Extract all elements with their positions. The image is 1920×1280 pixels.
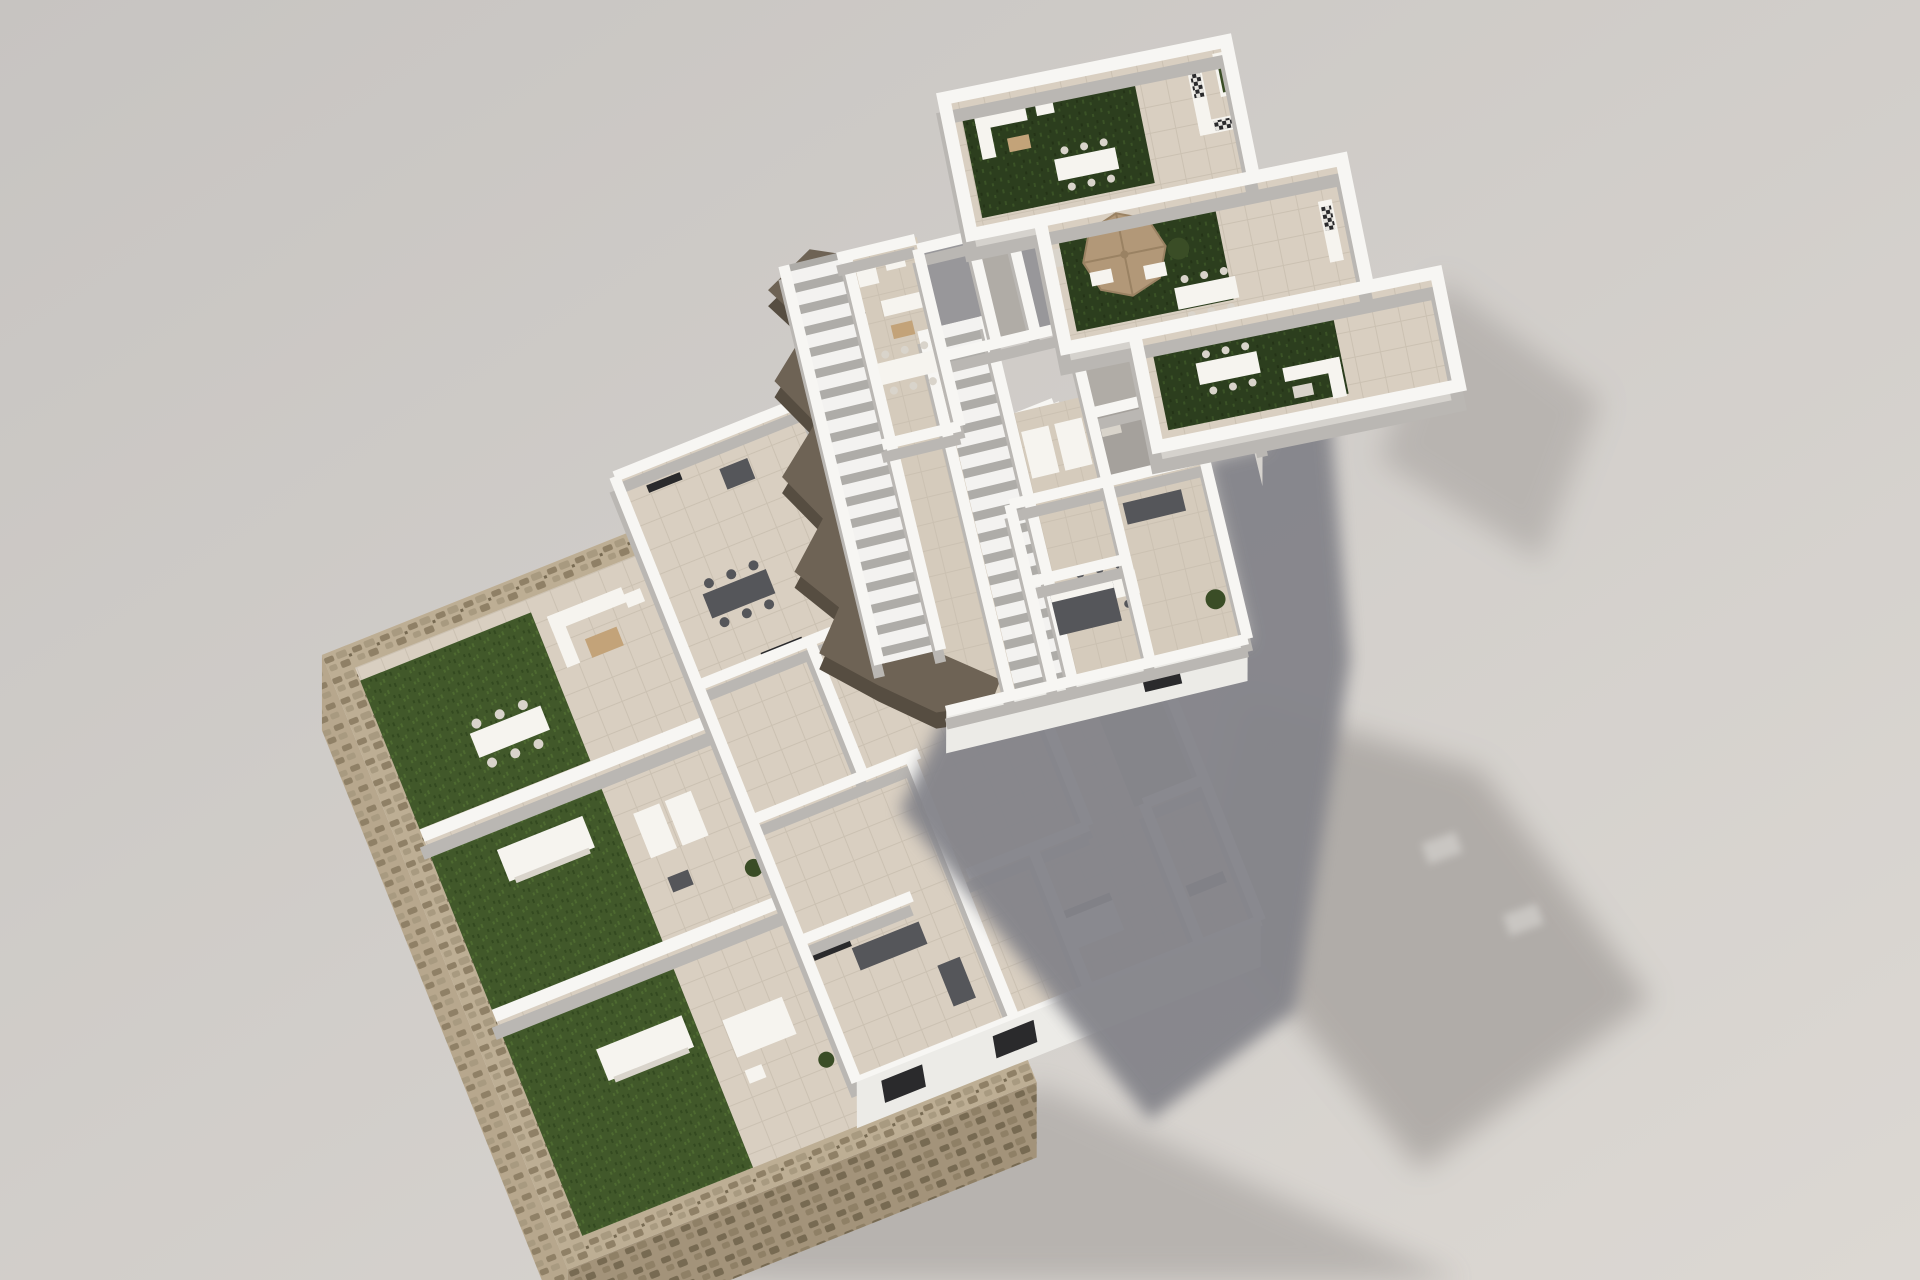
render-stage: [0, 0, 1920, 1280]
exploded-floor-plan-render: [0, 0, 1920, 1280]
